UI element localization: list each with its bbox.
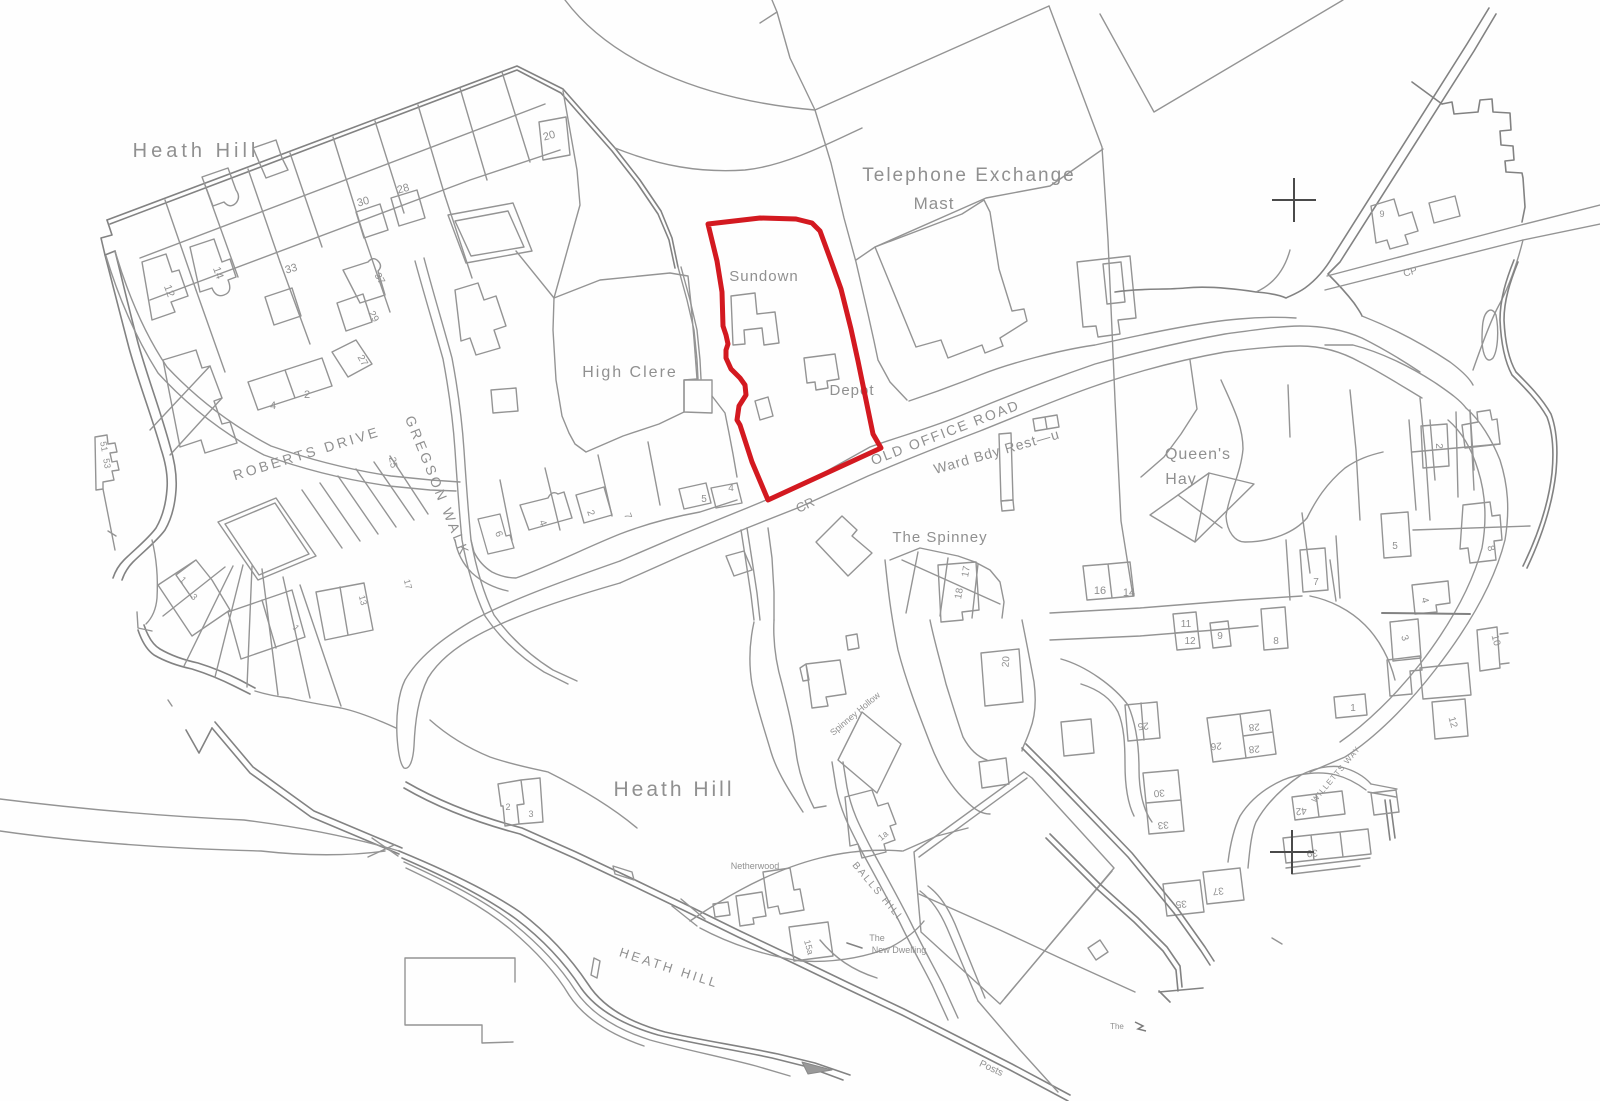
svg-text:28: 28	[1248, 743, 1260, 755]
svg-text:4: 4	[728, 483, 734, 494]
svg-text:9: 9	[1379, 209, 1384, 219]
svg-text:5: 5	[701, 494, 707, 505]
svg-text:7: 7	[1313, 577, 1319, 588]
svg-text:16: 16	[1094, 585, 1106, 597]
svg-text:2: 2	[505, 802, 510, 812]
svg-text:1: 1	[1350, 703, 1356, 714]
svg-text:2: 2	[304, 389, 310, 401]
svg-text:The: The	[1110, 1022, 1124, 1031]
svg-text:5: 5	[1392, 541, 1398, 552]
svg-text:25: 25	[1137, 720, 1149, 732]
svg-text:28: 28	[1248, 721, 1260, 733]
svg-text:30: 30	[1153, 787, 1165, 799]
svg-text:Telephone Exchange: Telephone Exchange	[862, 165, 1075, 186]
svg-text:The: The	[869, 933, 885, 943]
svg-text:12: 12	[1184, 636, 1196, 647]
svg-text:Heath Hill: Heath Hill	[133, 140, 260, 162]
svg-text:8: 8	[1273, 636, 1279, 647]
svg-text:Heath Hill: Heath Hill	[613, 778, 734, 801]
svg-text:Netherwood: Netherwood	[731, 861, 780, 871]
svg-text:4: 4	[270, 400, 276, 412]
svg-text:33: 33	[1157, 819, 1169, 831]
svg-text:11: 11	[1181, 619, 1192, 630]
svg-text:Mast: Mast	[914, 194, 955, 213]
svg-text:53: 53	[101, 458, 113, 470]
svg-text:42: 42	[1295, 805, 1307, 817]
svg-text:9: 9	[1217, 631, 1223, 642]
svg-text:35: 35	[1175, 898, 1187, 910]
svg-text:Queen's: Queen's	[1165, 446, 1231, 463]
svg-text:Hay: Hay	[1165, 471, 1196, 488]
svg-text:High Clere: High Clere	[582, 364, 678, 381]
svg-text:37: 37	[1212, 885, 1224, 897]
svg-text:2: 2	[1433, 443, 1444, 449]
svg-text:The Spinney: The Spinney	[892, 529, 987, 546]
svg-text:3: 3	[528, 809, 533, 819]
svg-text:14: 14	[1123, 587, 1135, 599]
svg-text:26: 26	[1210, 740, 1222, 752]
svg-text:20: 20	[1001, 655, 1013, 667]
svg-text:Sundown: Sundown	[729, 268, 799, 285]
svg-text:New Dwelling: New Dwelling	[872, 945, 927, 955]
svg-text:51: 51	[98, 441, 110, 453]
